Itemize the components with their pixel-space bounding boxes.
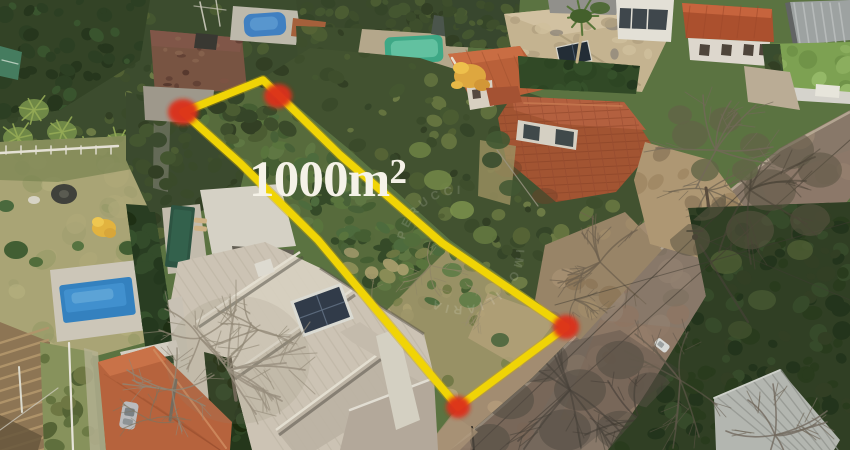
svg-text:1000m2: 1000m2 bbox=[249, 152, 406, 208]
